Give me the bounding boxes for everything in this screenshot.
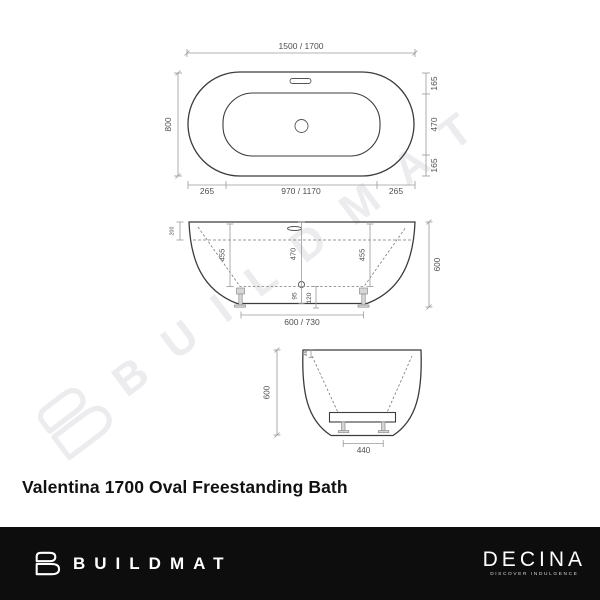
bath-end-profile [303, 350, 421, 436]
dim-right-inner-label: 470 [429, 117, 439, 131]
dim-length-label: 1500 / 1700 [279, 41, 324, 51]
dim-line-width [174, 71, 182, 179]
dim-right-rim-bottom-label: 165 [429, 158, 439, 172]
dim-base-clearance-label: 95 [292, 292, 299, 300]
dim-feet-spacing-end-label: 440 [357, 446, 371, 455]
dim-line-end-height [274, 348, 281, 438]
dim-width-label: 800 [163, 117, 173, 131]
dim-depth-right-label: 455 [358, 249, 367, 262]
dim-end-height-label: 600 [263, 385, 272, 399]
top-view: 1500 / 1700 800 165 470 165 265 970 / 11… [163, 41, 439, 196]
overflow-slot [290, 79, 311, 84]
base-plinth [330, 413, 396, 423]
end-inner-profile-dashed [312, 356, 412, 413]
bath-technical-drawing: 1500 / 1700 800 165 470 165 265 970 / 11… [0, 0, 600, 475]
bath-feet-end [338, 422, 389, 433]
decina-logo: DECINA DISCOVER INDULGENCE [483, 549, 586, 577]
buildmat-logo-icon-footer [30, 550, 62, 577]
overflow-side-mark [288, 227, 302, 231]
dim-line-rim-drop [177, 222, 184, 240]
product-title: Valentina 1700 Oval Freestanding Bath [22, 477, 348, 498]
bath-inner-basin [223, 93, 380, 156]
dim-line-depths [227, 222, 374, 287]
dim-feet-spacing-side-label: 600 / 730 [284, 317, 320, 327]
dim-rim-drop-label: 200 [170, 227, 176, 236]
decina-tagline: DISCOVER INDULGENCE [490, 573, 578, 578]
dim-bottom-rim-left-label: 265 [200, 186, 214, 196]
dim-bottom-inner-label: 970 / 1170 [281, 186, 321, 196]
inner-profile-dashed [198, 227, 406, 287]
dim-side-height-label: 600 [433, 257, 442, 271]
buildmat-wordmark: BUILDMAT [73, 554, 233, 574]
dim-depth-center-label: 470 [289, 248, 298, 261]
drain-waste [295, 120, 308, 133]
dim-depth-left-label: 455 [218, 249, 227, 262]
dim-right-rim-top-label: 165 [429, 76, 439, 90]
side-view: 200 455 470 455 600 95 120 [170, 220, 443, 328]
dim-floor-clearance-label: 120 [306, 292, 313, 303]
decina-wordmark: DECINA [483, 549, 586, 570]
dim-line-rim-thickness [309, 350, 314, 358]
buildmat-logo: BUILDMAT [30, 550, 233, 577]
dim-rim-thickness-label: 45 [303, 351, 309, 357]
end-view: 45 600 440 [263, 348, 422, 456]
dim-line-side-height [426, 220, 433, 310]
footer-brand-bar: BUILDMAT DECINA DISCOVER INDULGENCE [0, 527, 600, 600]
dim-bottom-rim-right-label: 265 [389, 186, 403, 196]
